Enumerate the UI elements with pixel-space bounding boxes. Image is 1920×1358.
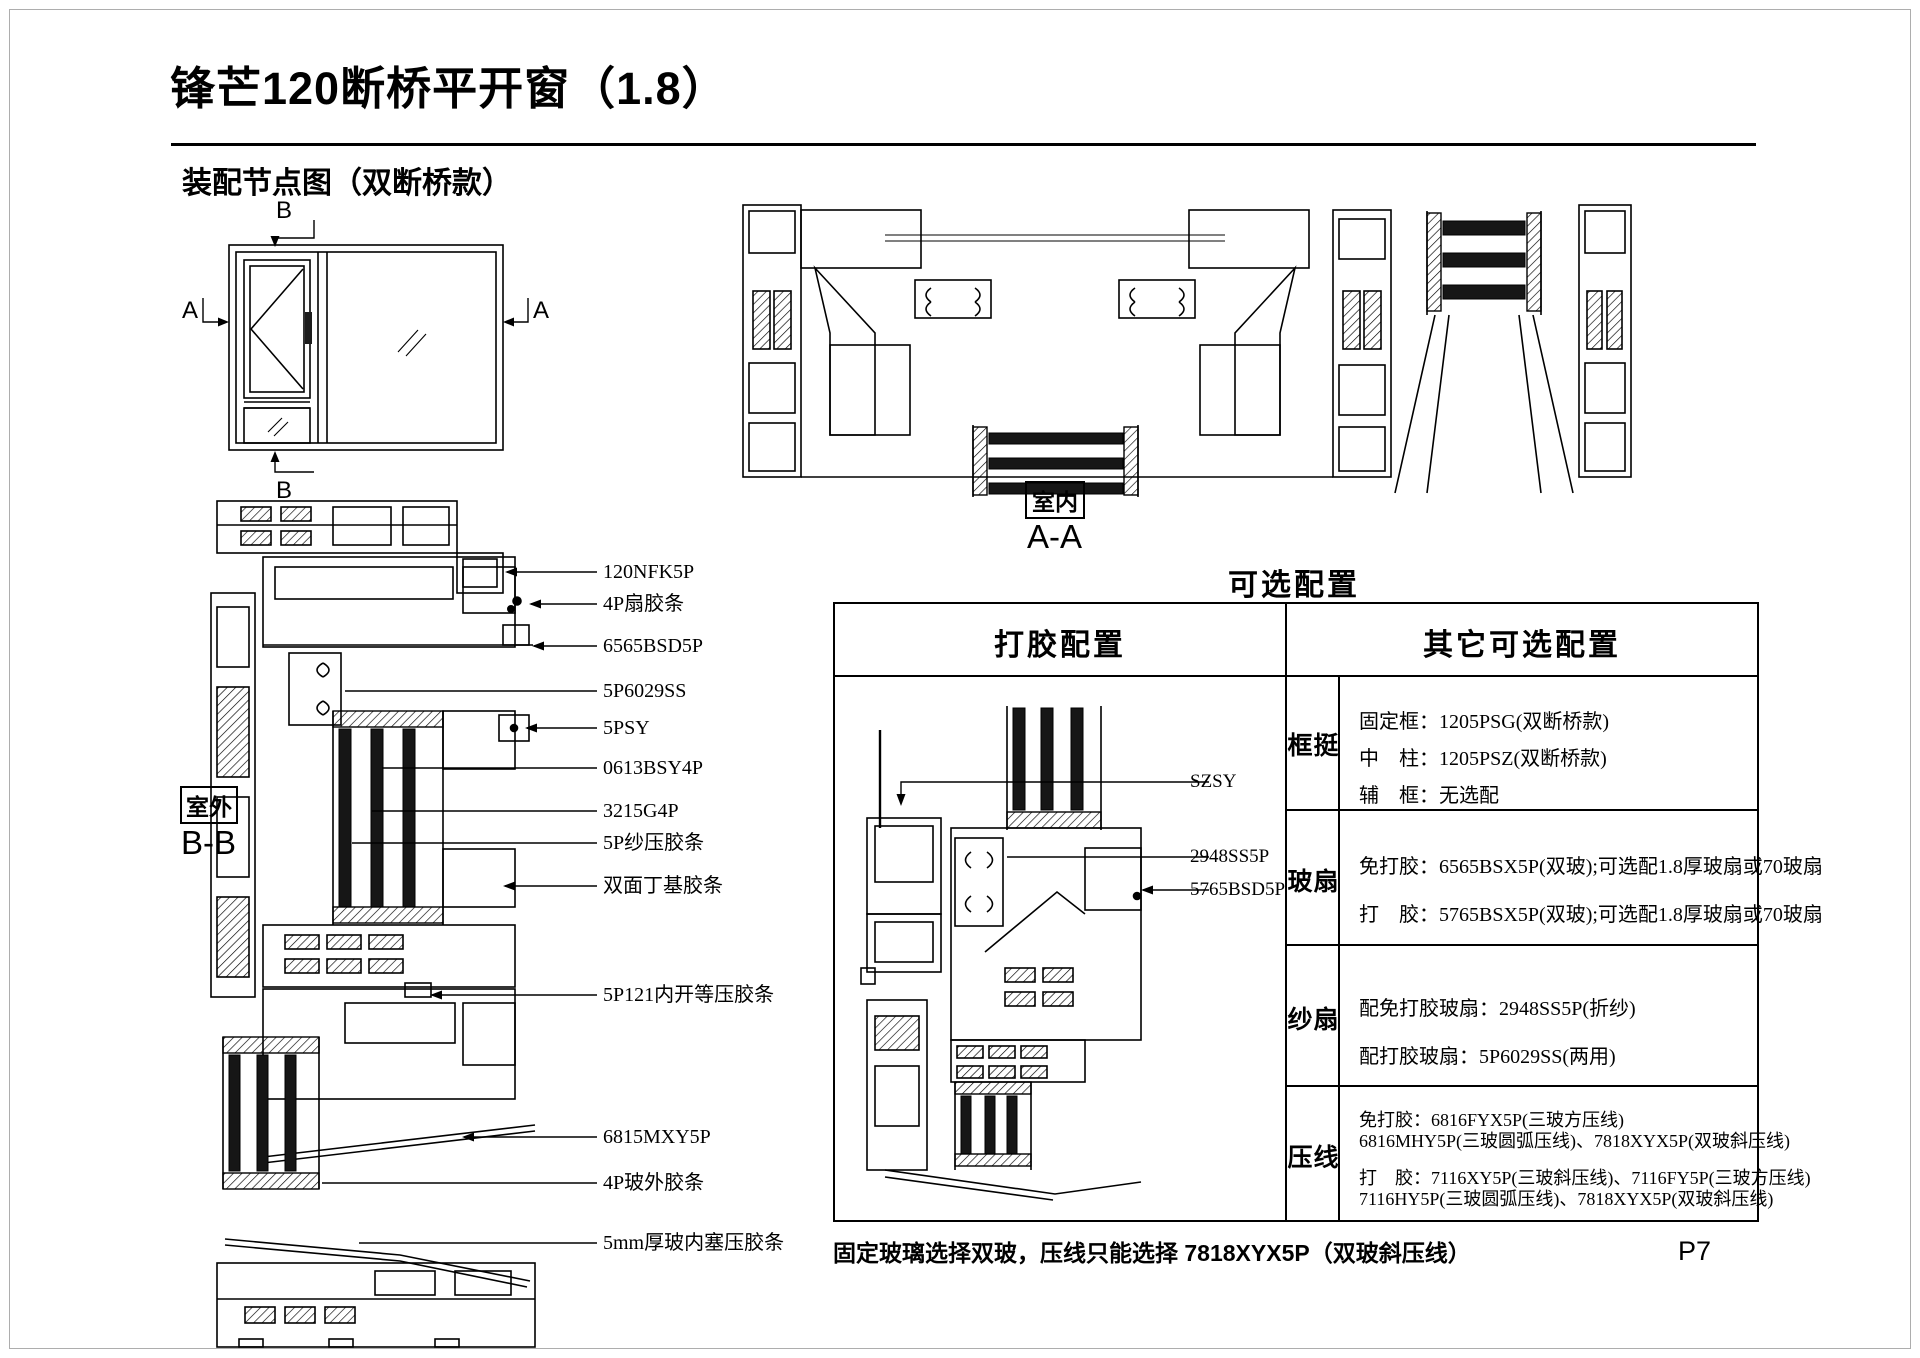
page-title: 锋芒120断桥平开窗（1.8）	[170, 52, 728, 117]
bb-lower-glazing	[223, 1037, 319, 1189]
bb-transom	[263, 925, 515, 997]
part-label: 5P纱压胶条	[603, 830, 704, 856]
config-line: 配打胶玻扇：5P6029SS(两用)	[1359, 1040, 1616, 1069]
bb-leader-arrows	[430, 568, 544, 1142]
gc-lower-rows	[951, 1040, 1085, 1082]
gc-sash-body	[951, 828, 1141, 1040]
catalog-page: { "page": { "title": "锋芒120断桥平开窗（1.8）", …	[0, 0, 1920, 1358]
title-rule	[171, 143, 1756, 146]
outdoor-label: 室外	[186, 788, 232, 822]
col-header-glue-config: 打胶配置	[835, 620, 1285, 664]
section-markers: B A A B	[182, 197, 549, 504]
diagram-label: SZSY	[1190, 770, 1236, 794]
table-row-line	[1285, 809, 1757, 811]
diagram-label: 2948SS5P	[1190, 845, 1269, 869]
bb-upper-glazing	[333, 711, 515, 925]
config-line: 固定框：1205PSG(双断桥款)	[1359, 705, 1609, 734]
part-label: 6565BSD5P	[603, 633, 703, 659]
bb-sash-head	[263, 557, 533, 647]
aa-right-frame	[1579, 205, 1631, 477]
row-label-bead: 压线	[1287, 1138, 1340, 1174]
bb-sill	[217, 1263, 535, 1347]
bb-clip	[499, 715, 529, 741]
bb-frame-head	[217, 501, 503, 593]
indoor-label-box: 室内	[1025, 481, 1085, 519]
table-divider-main	[1285, 604, 1287, 1220]
aa-section-drawing	[735, 195, 1635, 500]
col-header-other-config: 其它可选配置	[1287, 620, 1757, 664]
aa-section-title: A-A	[1027, 518, 1082, 556]
aa-left-sash	[801, 210, 991, 435]
glass-marks	[268, 330, 426, 436]
row-label-glass-sash: 玻扇	[1287, 862, 1340, 898]
marker-b-top: B	[276, 197, 292, 224]
bb-section-title: B-B	[181, 824, 236, 862]
part-label: 3215G4P	[603, 798, 679, 824]
config-line: 打 胶：5765BSX5P(双玻);可选配1.8厚玻扇或70玻扇	[1359, 898, 1823, 927]
options-title: 可选配置	[833, 560, 1755, 604]
config-line: 辅 框：无选配	[1359, 779, 1499, 808]
indoor-label: 室内	[1032, 483, 1078, 517]
row-label-screen-sash: 纱扇	[1287, 1000, 1340, 1036]
table-row-line	[1285, 944, 1757, 946]
glue-config-diagram	[855, 700, 1212, 1200]
aa-left-frame	[743, 205, 801, 477]
window-handle	[305, 312, 312, 344]
part-label: 0613BSY4P	[603, 755, 703, 781]
part-label: 5mm厚玻内塞压胶条	[603, 1230, 784, 1256]
diagram-label: 5765BSD5P	[1190, 878, 1285, 902]
row-label-frame: 框挺	[1287, 726, 1340, 762]
aa-right-sash	[1119, 210, 1309, 435]
gc-leader-lines	[901, 782, 1209, 890]
part-label: 双面丁基胶条	[603, 873, 723, 899]
assembly-subtitle: 装配节点图（双断桥款）	[182, 158, 512, 202]
gc-spacer-box	[955, 838, 1003, 926]
part-label: 5P6029SS	[603, 678, 686, 704]
marker-a-left: A	[182, 297, 198, 324]
gc-upper-glazing	[1007, 706, 1101, 830]
part-label: 5PSY	[603, 715, 650, 741]
config-line: 7116HY5P(三玻圆弧压线)、7818XYX5P(双玻斜压线)	[1359, 1185, 1773, 1211]
aa-center-joint	[885, 235, 1225, 241]
aa-mid-frame	[1333, 210, 1391, 477]
window-elevation-diagram: B A A B	[180, 198, 570, 508]
config-line: 配免打胶玻扇：2948SS5P(折纱)	[1359, 992, 1636, 1021]
outdoor-label-box: 室外	[180, 786, 238, 824]
part-label: 120NFK5P	[603, 559, 694, 585]
table-row-line	[1285, 1085, 1757, 1087]
table-header-line	[835, 675, 1757, 677]
bb-section-drawing	[205, 497, 600, 1358]
gc-left-frame	[861, 818, 941, 984]
config-line: 免打胶：6565BSX5P(双玻);可选配1.8厚玻扇或70玻扇	[1359, 850, 1823, 879]
footnote: 固定玻璃选择双玻，压线只能选择 7818XYX5P（双玻斜压线）	[833, 1234, 1471, 1268]
gc-lower-glazing	[955, 1082, 1031, 1170]
gc-sill	[867, 1000, 1141, 1200]
config-line: 6816MHY5P(三玻圆弧压线)、7818XYX5P(双玻斜压线)	[1359, 1127, 1790, 1153]
aa-fixed-glazing	[1395, 211, 1573, 493]
part-label: 4P玻外胶条	[603, 1170, 704, 1196]
part-label: 4P扇胶条	[603, 591, 684, 617]
config-line: 中 柱：1205PSZ(双断桥款)	[1359, 742, 1607, 771]
part-label: 5P121内开等压胶条	[603, 982, 774, 1008]
part-label: 6815MXY5P	[603, 1124, 711, 1150]
elevation-frame	[229, 245, 503, 450]
marker-a-right: A	[533, 297, 549, 324]
page-number: P7	[1678, 1236, 1711, 1267]
